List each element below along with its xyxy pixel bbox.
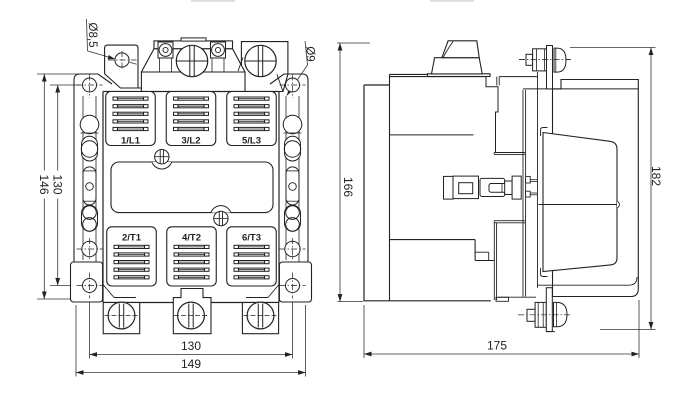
svg-text:Ø8,5: Ø8,5 [86,23,98,48]
svg-text:182: 182 [649,166,663,186]
svg-text:175: 175 [487,339,507,353]
svg-text:1/L1: 1/L1 [121,135,141,146]
svg-text:2/T1: 2/T1 [122,232,142,243]
svg-text:130: 130 [50,174,64,194]
svg-text:6/T3: 6/T3 [242,232,261,243]
svg-text:146: 146 [37,174,51,194]
svg-text:149: 149 [181,357,201,371]
svg-text:5/L3: 5/L3 [242,135,261,146]
svg-text:130: 130 [181,339,201,353]
svg-text:4/T2: 4/T2 [182,232,201,243]
svg-text:166: 166 [341,177,355,197]
svg-text:Ø9: Ø9 [304,46,316,61]
svg-text:3/L2: 3/L2 [181,135,200,146]
